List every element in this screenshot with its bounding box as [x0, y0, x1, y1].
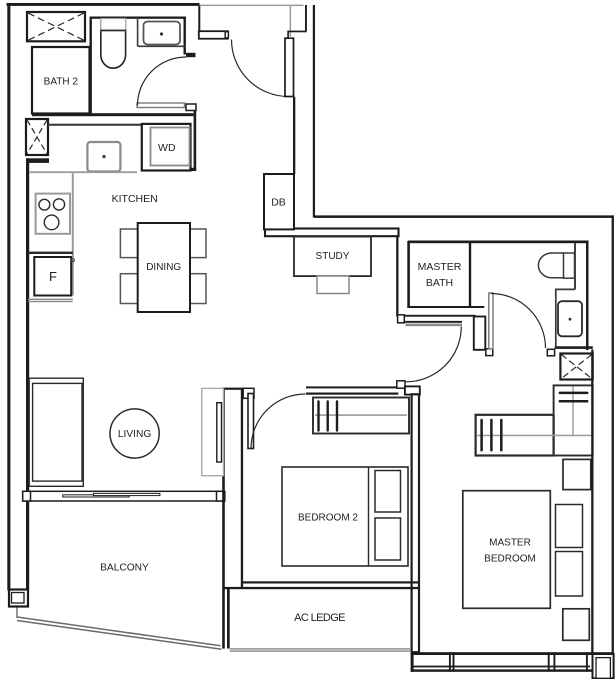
- svg-text:F: F: [49, 269, 57, 284]
- svg-text:KITCHEN: KITCHEN: [112, 193, 158, 205]
- svg-text:BATH 2: BATH 2: [44, 77, 79, 88]
- svg-text:MASTER: MASTER: [418, 261, 462, 273]
- svg-text:STUDY: STUDY: [316, 251, 350, 262]
- svg-text:DB: DB: [271, 197, 286, 209]
- svg-text:BEDROOM 2: BEDROOM 2: [298, 513, 358, 524]
- svg-text:LIVING: LIVING: [118, 429, 151, 440]
- svg-text:BALCONY: BALCONY: [100, 563, 149, 574]
- svg-text:DINING: DINING: [146, 262, 181, 273]
- svg-text:BEDROOM: BEDROOM: [484, 554, 536, 565]
- svg-text:BATH: BATH: [426, 277, 453, 289]
- svg-text:MASTER: MASTER: [489, 538, 531, 549]
- svg-text:AC LEDGE: AC LEDGE: [294, 612, 345, 624]
- svg-text:WD: WD: [158, 142, 176, 154]
